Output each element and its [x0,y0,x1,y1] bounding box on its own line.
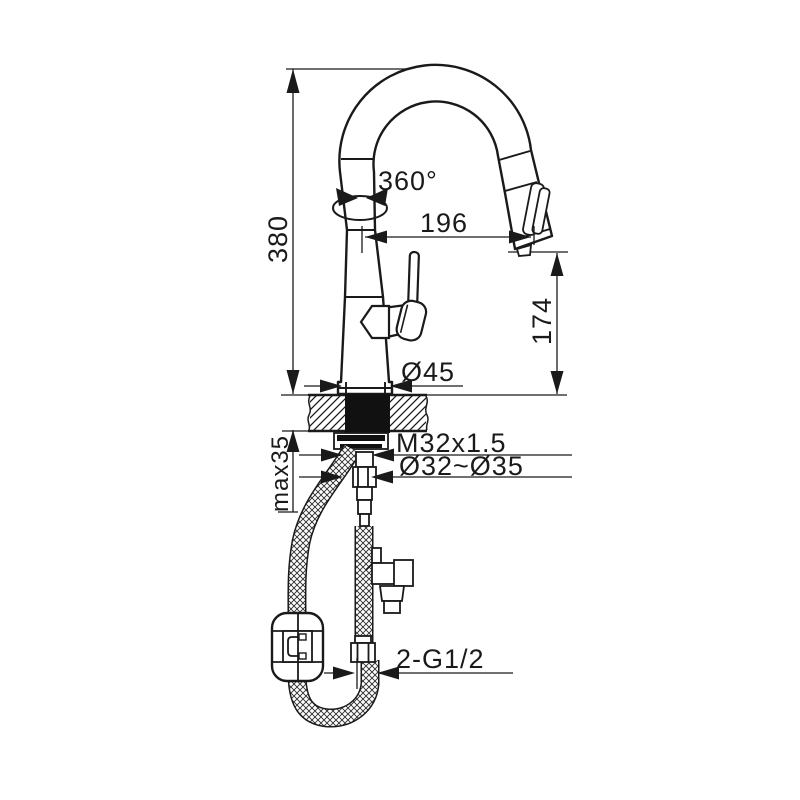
dim-196-label: 196 [420,208,468,238]
shank-pipe-segment-5 [360,514,369,526]
hex-connector-collar [355,636,371,643]
countertop-torn-edge-right [426,396,428,430]
dim-360-label: 360° [378,166,438,196]
mounting-shank [345,394,390,433]
countertop-hatch-right [390,396,426,431]
arrow-174-bottom [551,371,564,394]
hose-weight [272,613,323,681]
hex-connector-body [351,643,375,662]
hose-weight-screw-top [299,634,306,640]
valve-end-block [394,560,413,586]
arrow-174-top [551,253,564,276]
shank-pipe-segment-4 [358,500,371,514]
mounting-nut-band-1 [337,435,385,441]
countertop-hatch-left [310,396,345,431]
dim-g12-label: 2-G1/2 [396,644,485,674]
hose-weight-screw-bottom [299,653,306,659]
arrow-380-bottom [287,370,300,394]
shank-pipe [353,452,376,526]
valve-stub [384,601,400,613]
faucet-technical-drawing: 380 360° 196 174 Ø45 M32x1.5 Ø32~Ø35 max… [0,0,800,800]
shank-pipe-segment-1 [356,452,373,467]
dim-max35-label: max35 [267,435,294,512]
arrow-g12-left [333,667,355,680]
dim-380-label: 380 [263,215,293,263]
dim-d45-label: Ø45 [401,357,455,387]
shank-pipe-segment-3 [357,487,372,500]
mounting-nut [334,433,388,449]
valve-nut [380,586,404,601]
arrow-m32-right [372,449,394,462]
hex-connector [351,636,375,662]
arrow-380-top [287,69,300,93]
dim-174-label: 174 [527,297,557,345]
valve-tab [372,548,381,563]
diagram-canvas: 380 360° 196 174 Ø45 M32x1.5 Ø32~Ø35 max… [0,0,800,800]
dim-d32-label: Ø32~Ø35 [399,451,524,481]
countertop-torn-edge-left [308,396,310,430]
